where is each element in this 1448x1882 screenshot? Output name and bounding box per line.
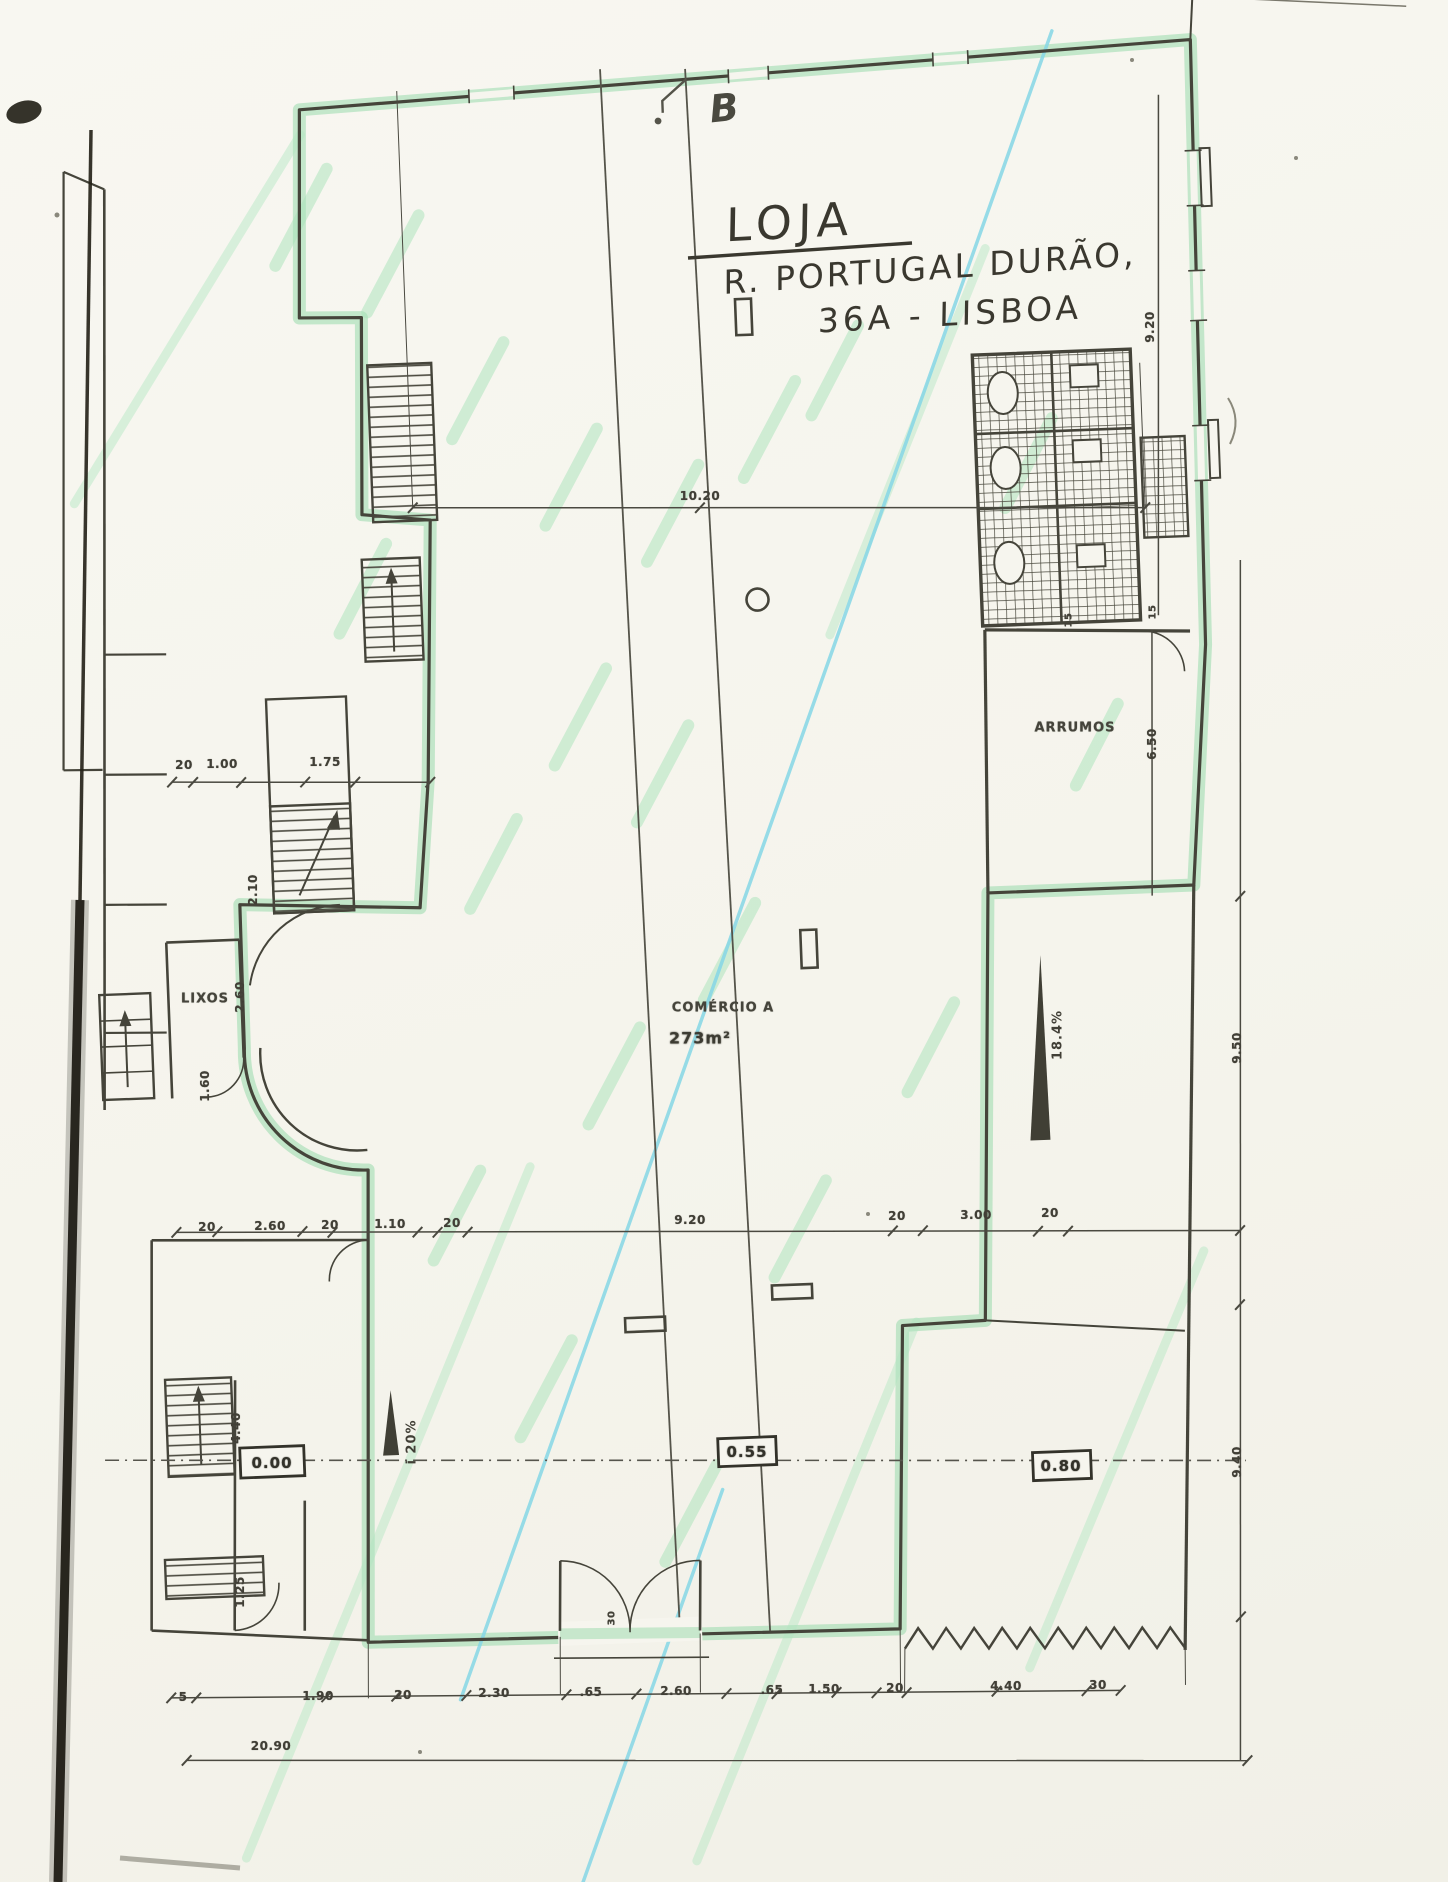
staircases bbox=[75, 363, 478, 1601]
entrance-double-door bbox=[550, 1555, 709, 1663]
floor-plan-drawing bbox=[0, 0, 1448, 1882]
lixos-room bbox=[166, 940, 245, 1099]
floor-plan-sheet bbox=[0, 0, 1448, 1882]
cyan-diagonal-lines bbox=[397, 31, 1122, 1882]
scanned-floor-plan-page: LOJA R. PORTUGAL DURÃO, 36A - LISBOA B A… bbox=[0, 0, 1448, 1882]
level-line bbox=[105, 1409, 1247, 1516]
ramp-arrows bbox=[365, 955, 1062, 1456]
columns bbox=[586, 297, 831, 1332]
green-highlighter-boundary bbox=[207, 40, 1251, 1654]
dimension-lines bbox=[105, 59, 1287, 1807]
section-lines bbox=[600, 65, 770, 1635]
